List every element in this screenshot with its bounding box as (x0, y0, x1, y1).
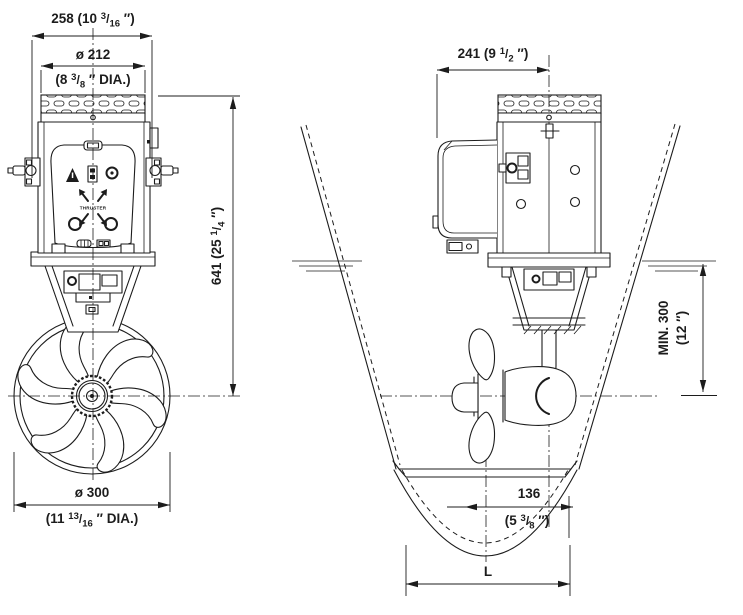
dim-tunnel-length: L (406, 545, 570, 596)
vent-grille (498, 95, 601, 113)
tunnel-side-band (393, 461, 577, 477)
arrowhead (700, 380, 706, 392)
arrowhead (437, 67, 449, 73)
hull-bottom-arc (394, 470, 577, 556)
dim-label: L (484, 564, 492, 579)
arrowhead (465, 504, 477, 510)
dim-label: 241 (9 1/2 ″) (458, 46, 529, 65)
arrowhead (14, 502, 26, 508)
dim-overall-height: 641 (25 1/4 ″) (158, 96, 240, 396)
arrowhead (230, 97, 236, 109)
box-tab (433, 216, 438, 228)
cover-foot-left (52, 244, 65, 253)
arrowhead (133, 63, 145, 69)
propeller-blade-upper (469, 329, 495, 380)
side-bracket (150, 128, 158, 148)
propeller-nose-cone (452, 383, 478, 412)
technical-drawing-page: THRUSTER 258 (10 3/16 ″) (0, 0, 743, 615)
spec-label-glyph (90, 175, 95, 179)
gear-leg-side (506, 267, 592, 334)
flange-plate (488, 253, 610, 267)
clamp-plate (25, 158, 40, 186)
arrowhead (558, 581, 570, 587)
waterline-right (642, 261, 716, 271)
arrowhead (561, 504, 573, 510)
arrowhead (140, 33, 152, 39)
box-outer (438, 140, 497, 238)
spec-label-glyph (90, 169, 95, 173)
motor-side (433, 95, 601, 253)
gear-pod (505, 367, 576, 426)
dim-label: 641 (25 1/4 ″) (209, 207, 228, 285)
propeller-blade (31, 405, 87, 453)
dim-label: 258 (10 3/16 ″) (51, 11, 134, 30)
clamp-bolt-tip (8, 168, 13, 173)
clamp-right (146, 158, 178, 186)
arrowhead (158, 502, 170, 508)
clamp-bolt-tip (173, 168, 178, 173)
dim-label-inches: (5 3/8 ″) (505, 513, 549, 532)
side-bracket-bolt (147, 140, 151, 144)
dim-label-inches: (12 ″) (674, 311, 689, 345)
terminal-bolt (499, 164, 506, 172)
brand-roundel-dot (110, 171, 113, 174)
flange-foot (587, 267, 596, 277)
mount-dot (89, 296, 92, 299)
propeller-blade-lower (469, 412, 495, 463)
clamp-plate (146, 158, 161, 186)
dim-label: MIN. 300 (656, 301, 671, 356)
waterline-left (292, 261, 362, 271)
arrowhead (537, 67, 549, 73)
electronics-box (433, 140, 497, 253)
gear-pod-side (503, 330, 576, 425)
dim-min-submersion: MIN. 300 (12 ″) (656, 264, 717, 396)
connector-pill (77, 240, 91, 247)
dim-center-offset: 136 (5 3/8 ″) (447, 486, 573, 538)
dim-tunnel-diameter: ø 300 (11 13/16 ″ DIA.) (14, 452, 170, 530)
clamp-left (8, 158, 40, 186)
arrowhead (230, 384, 236, 396)
dim-label-inches: (11 13/16 ″ DIA.) (46, 511, 139, 530)
grille-base-band (498, 113, 601, 122)
dim-label: 136 (518, 486, 541, 501)
thruster-installation-drawing: THRUSTER 258 (10 3/16 ″) (0, 0, 743, 615)
hull-wall-left-inner (306, 125, 400, 465)
dim-label-inches: (8 3/8 ″ DIA.) (55, 72, 130, 91)
arrowhead (41, 63, 53, 69)
clamp-bolt (161, 166, 173, 175)
flange-foot (502, 267, 511, 277)
hull-wall-left (301, 127, 396, 469)
arrowhead (32, 33, 44, 39)
dim-label: ø 300 (75, 485, 110, 500)
warning-exclamation (72, 173, 74, 179)
arrowhead (406, 581, 418, 587)
clamp-bolt (13, 166, 25, 175)
cover-foot-right (121, 244, 134, 253)
side-view: 241 (9 1/2 ″) MIN. 300 (12 ″) 136 (5 3/8… (292, 46, 717, 596)
front-view: THRUSTER 258 (10 3/16 ″) (8, 11, 240, 530)
dim-label: ø 212 (76, 47, 111, 62)
tunnel-hidden-arc (402, 470, 568, 543)
shaft-coupling (86, 305, 98, 314)
